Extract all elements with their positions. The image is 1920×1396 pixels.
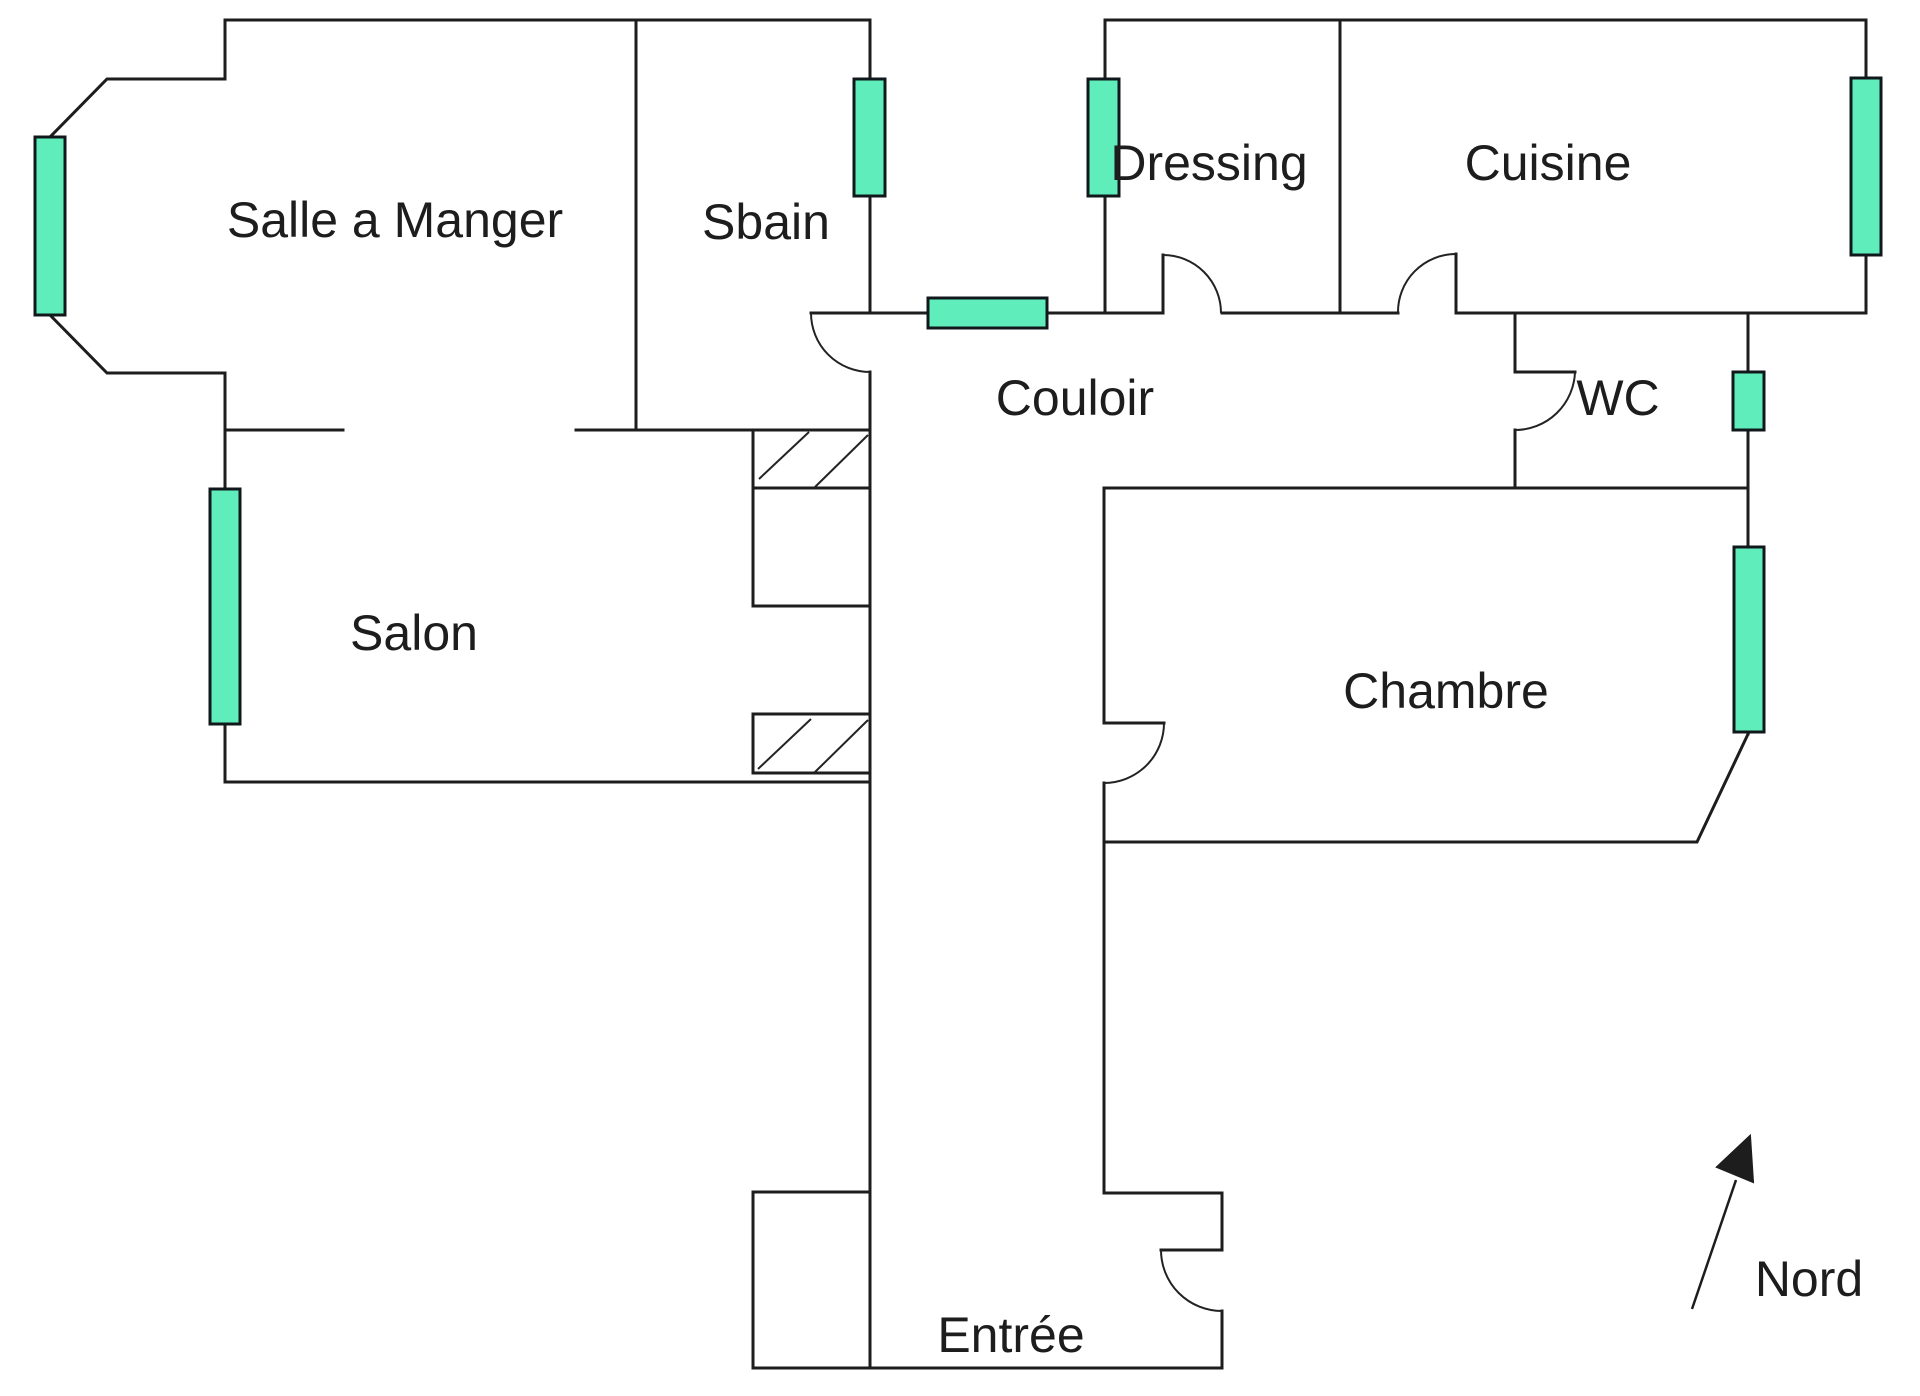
svg-text:Nord: Nord [1755, 1251, 1863, 1307]
svg-text:Sbain: Sbain [702, 194, 830, 250]
svg-text:Salle a Manger: Salle a Manger [227, 192, 563, 248]
svg-text:Salon: Salon [350, 605, 478, 661]
svg-text:Cuisine: Cuisine [1465, 135, 1632, 191]
svg-text:Chambre: Chambre [1343, 663, 1549, 719]
svg-text:Couloir: Couloir [996, 370, 1154, 426]
svg-text:Dressing: Dressing [1110, 135, 1307, 191]
svg-text:WC: WC [1576, 370, 1659, 426]
svg-text:Entrée: Entrée [937, 1307, 1084, 1363]
